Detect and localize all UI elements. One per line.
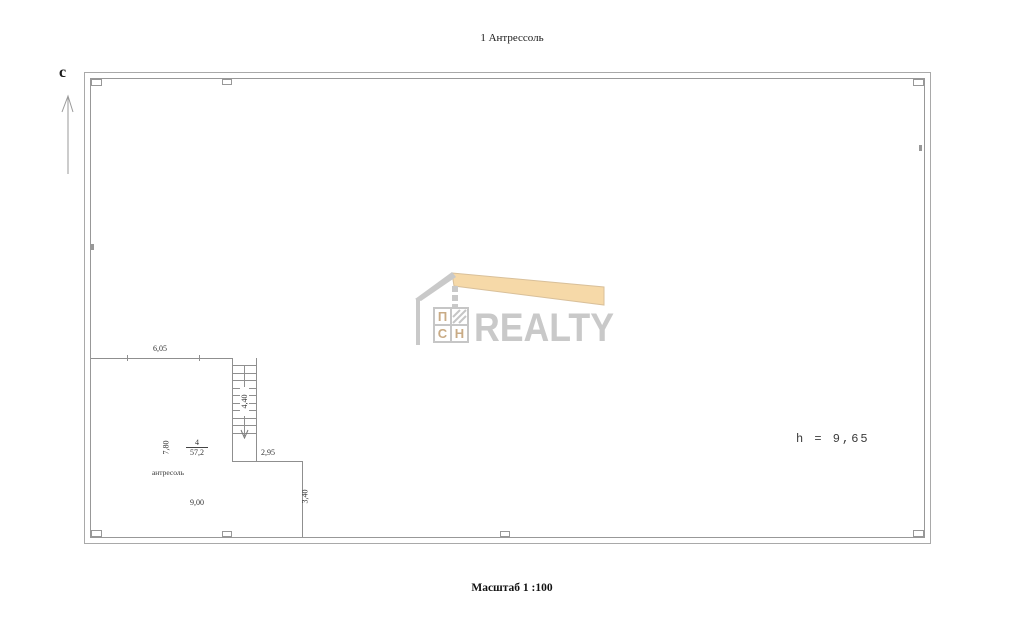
wall-notch [913, 530, 924, 537]
house-wall [416, 299, 420, 345]
wall-notch [222, 531, 232, 537]
stairs-down-arrow-icon [239, 429, 250, 439]
roof-shape [452, 273, 604, 305]
house-column [452, 295, 458, 301]
monogram-letter-p: П [438, 309, 447, 324]
room-wall-top [91, 358, 232, 359]
house-column [452, 286, 458, 292]
dimension-top-width: 6,05 [140, 344, 180, 353]
room-area: 57,2 [190, 448, 204, 457]
monogram-letter-s: С [438, 326, 448, 341]
scale-label: Масштаб 1 :100 [0, 582, 1024, 594]
roof-left-edge [415, 272, 456, 301]
room-number-area: 4 57,2 [181, 438, 213, 457]
dimension-tick [199, 355, 200, 361]
wall-tick [91, 244, 94, 250]
wall-notch [222, 79, 232, 85]
room-name-label: антресоль [138, 468, 198, 477]
dimension-stairs-run: 4,40 [240, 387, 249, 416]
wall-tick [919, 145, 922, 151]
wall-notch [913, 79, 924, 86]
watermark-logo: П С Н REALTY [402, 256, 616, 348]
room-number: 4 [186, 438, 208, 448]
north-arrow-icon [56, 86, 80, 178]
wall-notch [91, 79, 102, 86]
wall-notch [500, 531, 510, 537]
dimension-left-height: 7,80 [162, 433, 171, 463]
brand-text: REALTY [474, 306, 614, 348]
dimension-right-height: 3,40 [301, 482, 310, 512]
north-label: с [59, 64, 66, 82]
wall-notch [91, 530, 102, 537]
floor-plan-page: 1 Антрессоль Масштаб 1 :100 с 4,40 6,05 … [0, 0, 1024, 629]
monogram-letter-n: Н [455, 326, 464, 341]
page-title: 1 Антрессоль [0, 32, 1024, 44]
dimension-step-width: 2,95 [250, 448, 286, 457]
height-note: h = 9,65 [796, 432, 906, 446]
dimension-tick [127, 355, 128, 361]
dimension-bottom-width: 9,00 [178, 498, 216, 507]
